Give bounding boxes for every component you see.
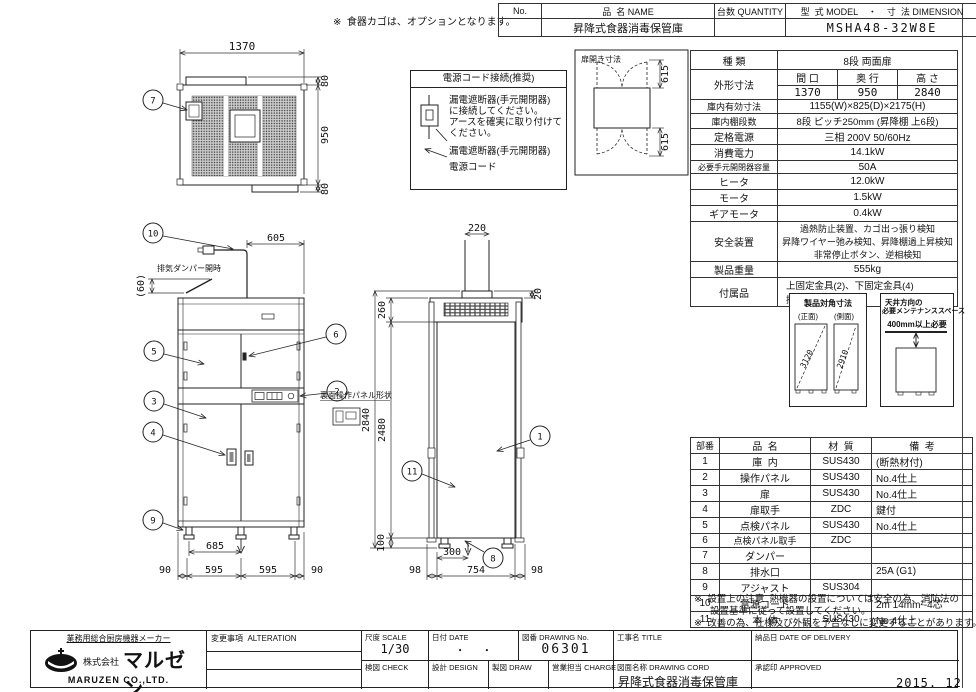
diagonal-dimension-box: 製品対角寸法 (正面) (側面) 3120 2910 (789, 293, 867, 407)
scale-cell: 尺度 SCALE 1/30 (361, 631, 428, 660)
diagonal-side-value: 2910 (835, 348, 850, 369)
balloon-8: 8 (465, 541, 503, 568)
spec-value-inner: 1155(W)×825(D)×2175(H) (778, 100, 958, 114)
header-no-value (499, 19, 542, 37)
parts-row: 1庫 内SUS430(断熱材付) (691, 454, 973, 470)
dim-drain-x: 685 (206, 541, 224, 552)
svg-text:6: 6 (333, 331, 338, 341)
drawing-name-cell: 図面名称 DRAWING CORD 昇降式食器消毒保管庫 (613, 660, 751, 689)
svg-text:3: 3 (151, 398, 156, 408)
spec-label-consumption: 消費電力 (691, 145, 778, 161)
spec-value-weight: 555kg (778, 262, 958, 278)
sheet-date-code: 2015. 12 (896, 676, 962, 690)
check-cell: 検図 CHECK (361, 660, 428, 689)
spec-value-gearmotor: 0.4kW (778, 206, 958, 222)
alteration-cell: 変更事項 ALTERATION (206, 631, 361, 689)
charge-label: 営業担当 CHARGE (552, 662, 616, 673)
header-col-model: 型 式 MODEL ・ 寸 法 DIMENSION (786, 4, 976, 19)
spec-label-heater: ヒータ (691, 174, 778, 190)
spec-label-gearmotor: ギアモータ (691, 206, 778, 222)
header-qty-value (715, 19, 786, 37)
spec-value-power: 三相 200V 50/60Hz (778, 129, 958, 145)
parts-row: 6点検パネル取手ZDC (691, 534, 973, 548)
parts-col-no: 部番 (691, 438, 720, 454)
date-cell: 日付 DATE ・ ・ (428, 631, 518, 660)
project-title-label: 工事名 TITLE (617, 632, 662, 643)
header-col-no: No. (499, 4, 542, 19)
header-col-name: 品 名 NAME (542, 4, 715, 19)
parts-row: 7ダンパー (691, 548, 973, 564)
spec-size-d-label: 奥 行 (838, 70, 898, 86)
project-title-cell: 工事名 TITLE (613, 631, 751, 660)
option-note: ※ 食器カゴは、オプションとなります。 (333, 13, 516, 28)
dim-margin-top: 80 (320, 75, 331, 87)
parts-row: 8排水口25A (G1) (691, 564, 973, 580)
front-view (178, 246, 304, 553)
svg-text:5: 5 (151, 348, 156, 358)
dim-leg-height: 100 (376, 534, 387, 552)
maruzen-logo-icon (43, 647, 79, 673)
exhaust-damper-label: 排気ダンパー開時 (157, 263, 221, 273)
spec-safety-line2: 昇降ワイヤー弛み検知、昇降棚過上昇検知 (780, 235, 955, 248)
spec-value-type: 8段 両面扉 (778, 51, 958, 70)
spec-label-weight: 製品重量 (691, 262, 778, 278)
dim-margin-bottom: 80 (320, 183, 331, 195)
svg-text:10: 10 (148, 230, 159, 240)
dim-depth: 950 (320, 126, 331, 144)
maintenance-diagram (881, 294, 951, 404)
diagonal-diagrams: 3120 2910 (790, 294, 864, 404)
dim-cord: 605 (267, 233, 285, 244)
spec-label-shelves: 庫内棚段数 (691, 114, 778, 129)
dim-door-open-top: 615 (660, 65, 671, 83)
dim-total-height: 2840 (361, 408, 372, 432)
parts-row: 4扉取手ZDC鍵付 (691, 502, 973, 518)
note-line-3: ※ 改善の為、仕様及び外観を予告なしに変更することがあります。 (694, 618, 962, 630)
balloon-9: 9 (143, 510, 183, 530)
charge-cell: 営業担当 CHARGE (548, 660, 613, 689)
design-cell: 設計 DESIGN (428, 660, 488, 689)
delivery-label: 納品日 DATE OF DELIVERY (755, 632, 851, 643)
parts-row: 3扉SUS430No.4仕上 (691, 486, 973, 502)
spec-safety-line3: 非常停止ボタン、逆相検知 (780, 248, 955, 261)
spec-size-h: 2840 (898, 86, 958, 100)
alteration-row-line (207, 669, 361, 670)
parts-col-material: 材 質 (811, 438, 872, 454)
scale-value: 1/30 (362, 642, 428, 656)
drawing-no-value: 06301 (519, 642, 613, 657)
spec-value-breaker: 50A (778, 161, 958, 174)
draw-cell: 製図 DRAW (488, 660, 548, 689)
note-line-2: 設置基準に従って設置してください。 (694, 606, 962, 618)
draw-label: 製図 DRAW (492, 662, 532, 673)
maker-cell: 業務用総合厨房機器メーカー 株式会社 マルゼン MARUZEN CO.,LTD. (31, 631, 206, 689)
svg-text:7: 7 (150, 97, 155, 107)
product-name: 昇降式食器消毒保管庫 (542, 19, 715, 37)
title-block: 業務用総合厨房機器メーカー 株式会社 マルゼン MARUZEN CO.,LTD.… (30, 630, 958, 688)
dim-span-left: 595 (205, 565, 223, 576)
dim-drain-y: 300 (443, 547, 461, 558)
side-view (427, 240, 524, 555)
dim-duct: 220 (468, 223, 486, 234)
dim-width: 1370 (229, 40, 256, 53)
company-prefix: 株式会社 (83, 655, 119, 668)
drawing-name-value: 昇降式食器消毒保管庫 (618, 673, 738, 690)
spec-size-h-label: 高 さ (898, 70, 958, 86)
svg-text:4: 4 (150, 429, 155, 439)
svg-text:1: 1 (537, 433, 542, 443)
alteration-row-line (207, 651, 361, 652)
parts-row: 5点検パネルSUS430No.4仕上 (691, 518, 973, 534)
maintenance-space-box: 天井方向の 必要メンテナンススペース 400mm以上必要 (880, 293, 954, 407)
header-table: No. 品 名 NAME 台数 QUANTITY 型 式 MODEL ・ 寸 法… (498, 3, 976, 37)
dim-top-section: 260 (377, 301, 388, 319)
spec-label-power: 定格電源 (691, 129, 778, 145)
header-col-qty: 台数 QUANTITY (715, 4, 786, 19)
spec-value-shelves: 8段 ピッチ250mm (昇降棚 上6段) (778, 114, 958, 129)
rear-panel-label: 裏面操作パネル形状 (320, 390, 392, 400)
spec-label-type: 種 類 (691, 51, 778, 70)
spec-table: 種 類 8段 両面扉 外形寸法 間 口 奥 行 高 さ 1370 950 284… (690, 50, 958, 307)
check-label: 検図 CHECK (365, 662, 408, 673)
spec-safety-line1: 過熱防止装置、カゴ出っ張り検知 (780, 222, 955, 235)
spec-value-consumption: 14.1kW (778, 145, 958, 161)
dim-foot-right: 90 (311, 565, 323, 576)
plan-view (177, 77, 307, 192)
spec-size-w: 1370 (778, 86, 838, 100)
diagonal-front-value: 3120 (798, 348, 815, 369)
door-swing-title: 扉開き寸法 (581, 54, 621, 64)
rear-panel-icon (333, 408, 360, 425)
drawing-no-cell: 図番 DRAWING No. 06301 (518, 631, 613, 660)
spec-label-accessories: 付属品 (691, 278, 778, 307)
spec-value-heater: 12.0kW (778, 174, 958, 190)
spec-value-motor: 1.5kW (778, 190, 958, 206)
maker-tagline: 業務用総合厨房機器メーカー (31, 633, 206, 644)
dim-duct-h: 20 (533, 288, 544, 300)
dim-foot-left: 90 (159, 565, 171, 576)
spec-size-w-label: 間 口 (778, 70, 838, 86)
balloon-10: 10 (143, 223, 233, 249)
spec-label-size: 外形寸法 (691, 70, 778, 100)
spec-acc-line1: 上固定金具(2)、下固定金具(4) (786, 278, 955, 292)
spec-label-breaker: 必要手元開閉器容量 (691, 161, 778, 174)
door-swing-diagram (575, 50, 688, 175)
parts-row: 2操作パネルSUS430No.4仕上 (691, 470, 973, 486)
dim-side-front: 98 (409, 565, 421, 576)
main-drawing: 1370 80 950 80 7 (30, 40, 690, 630)
parts-col-name: 品 名 (720, 438, 811, 454)
model-number: MSHA48-32W8E (786, 19, 976, 37)
svg-text:9: 9 (150, 517, 155, 527)
dim-side-depth: 754 (467, 565, 485, 576)
svg-text:8: 8 (490, 555, 495, 565)
parts-col-note: 備 考 (872, 438, 973, 454)
drawing-name-label: 図面名称 DRAWING CORD (617, 662, 709, 673)
spec-label-safety: 安全装置 (691, 222, 778, 262)
note-line-1: ※ 設置上の注意 熱機器の設置については安全の為、消防法の (694, 594, 962, 606)
svg-text:11: 11 (407, 468, 418, 478)
spec-label-motor: モータ (691, 190, 778, 206)
dim-span-right: 595 (259, 565, 277, 576)
dim-side-back: 98 (531, 565, 543, 576)
drawing-sheet: ※ 食器カゴは、オプションとなります。 No. 品 名 NAME 台数 QUAN… (0, 0, 976, 692)
delivery-cell: 納品日 DATE OF DELIVERY (751, 631, 959, 660)
approved-label: 承認印 APPROVED (755, 662, 821, 673)
dim-body-height: 2480 (377, 418, 388, 442)
company-english-name: MARUZEN CO.,LTD. (31, 675, 206, 685)
spec-size-d: 950 (838, 86, 898, 100)
spec-label-inner: 庫内有効寸法 (691, 100, 778, 114)
alteration-label: 変更事項 ALTERATION (211, 633, 297, 644)
dim-door-open-bottom: 615 (660, 133, 671, 151)
design-label: 設計 DESIGN (432, 662, 478, 673)
installation-notes: ※ 設置上の注意 熱機器の設置については安全の為、消防法の 設置基準に従って設置… (694, 594, 962, 630)
dim-exhaust: (60) (136, 274, 147, 298)
date-value: ・ ・ (429, 642, 518, 657)
